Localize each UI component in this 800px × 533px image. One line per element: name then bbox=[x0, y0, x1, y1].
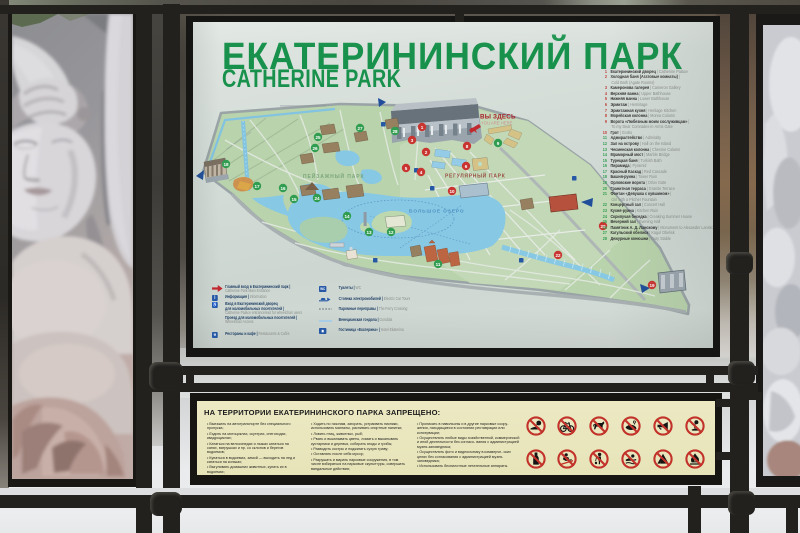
svg-text:27: 27 bbox=[357, 126, 363, 131]
svg-text:25: 25 bbox=[315, 135, 321, 140]
svg-text:24: 24 bbox=[314, 196, 320, 201]
svg-text:9: 9 bbox=[497, 141, 500, 146]
svg-text:18: 18 bbox=[223, 162, 229, 167]
svg-text:8: 8 bbox=[466, 144, 469, 149]
svg-text:ПЕЙЗАЖНЫЙ ПАРК: ПЕЙЗАЖНЫЙ ПАРК bbox=[303, 172, 365, 180]
svg-text:15: 15 bbox=[291, 197, 297, 202]
svg-text:1: 1 bbox=[421, 125, 424, 130]
svg-text:5: 5 bbox=[405, 166, 408, 171]
svg-text:14: 14 bbox=[344, 214, 350, 219]
svg-text:17: 17 bbox=[254, 184, 260, 189]
svg-text:4: 4 bbox=[420, 170, 423, 175]
svg-text:БОЛЬШОЕ ОЗЕРО: БОЛЬШОЕ ОЗЕРО bbox=[409, 209, 464, 215]
svg-text:2: 2 bbox=[425, 150, 428, 155]
svg-text:12: 12 bbox=[388, 230, 394, 235]
svg-text:28: 28 bbox=[392, 129, 398, 134]
svg-text:ВЫ ЗДЕСЬ: ВЫ ЗДЕСЬ bbox=[480, 114, 516, 121]
svg-text:16: 16 bbox=[280, 186, 286, 191]
svg-text:22: 22 bbox=[555, 253, 561, 258]
svg-text:РЕГУЛЯРНЫЙ ПАРК: РЕГУЛЯРНЫЙ ПАРК bbox=[445, 172, 506, 180]
svg-text:6: 6 bbox=[465, 164, 468, 169]
svg-text:19: 19 bbox=[649, 283, 655, 288]
svg-text:13: 13 bbox=[366, 230, 372, 235]
svg-text:11: 11 bbox=[436, 262, 441, 267]
svg-text:10: 10 bbox=[449, 189, 455, 194]
svg-text:YOU ARE HERE: YOU ARE HERE bbox=[481, 121, 513, 126]
svg-text:26: 26 bbox=[312, 146, 318, 151]
svg-text:3: 3 bbox=[411, 138, 414, 143]
